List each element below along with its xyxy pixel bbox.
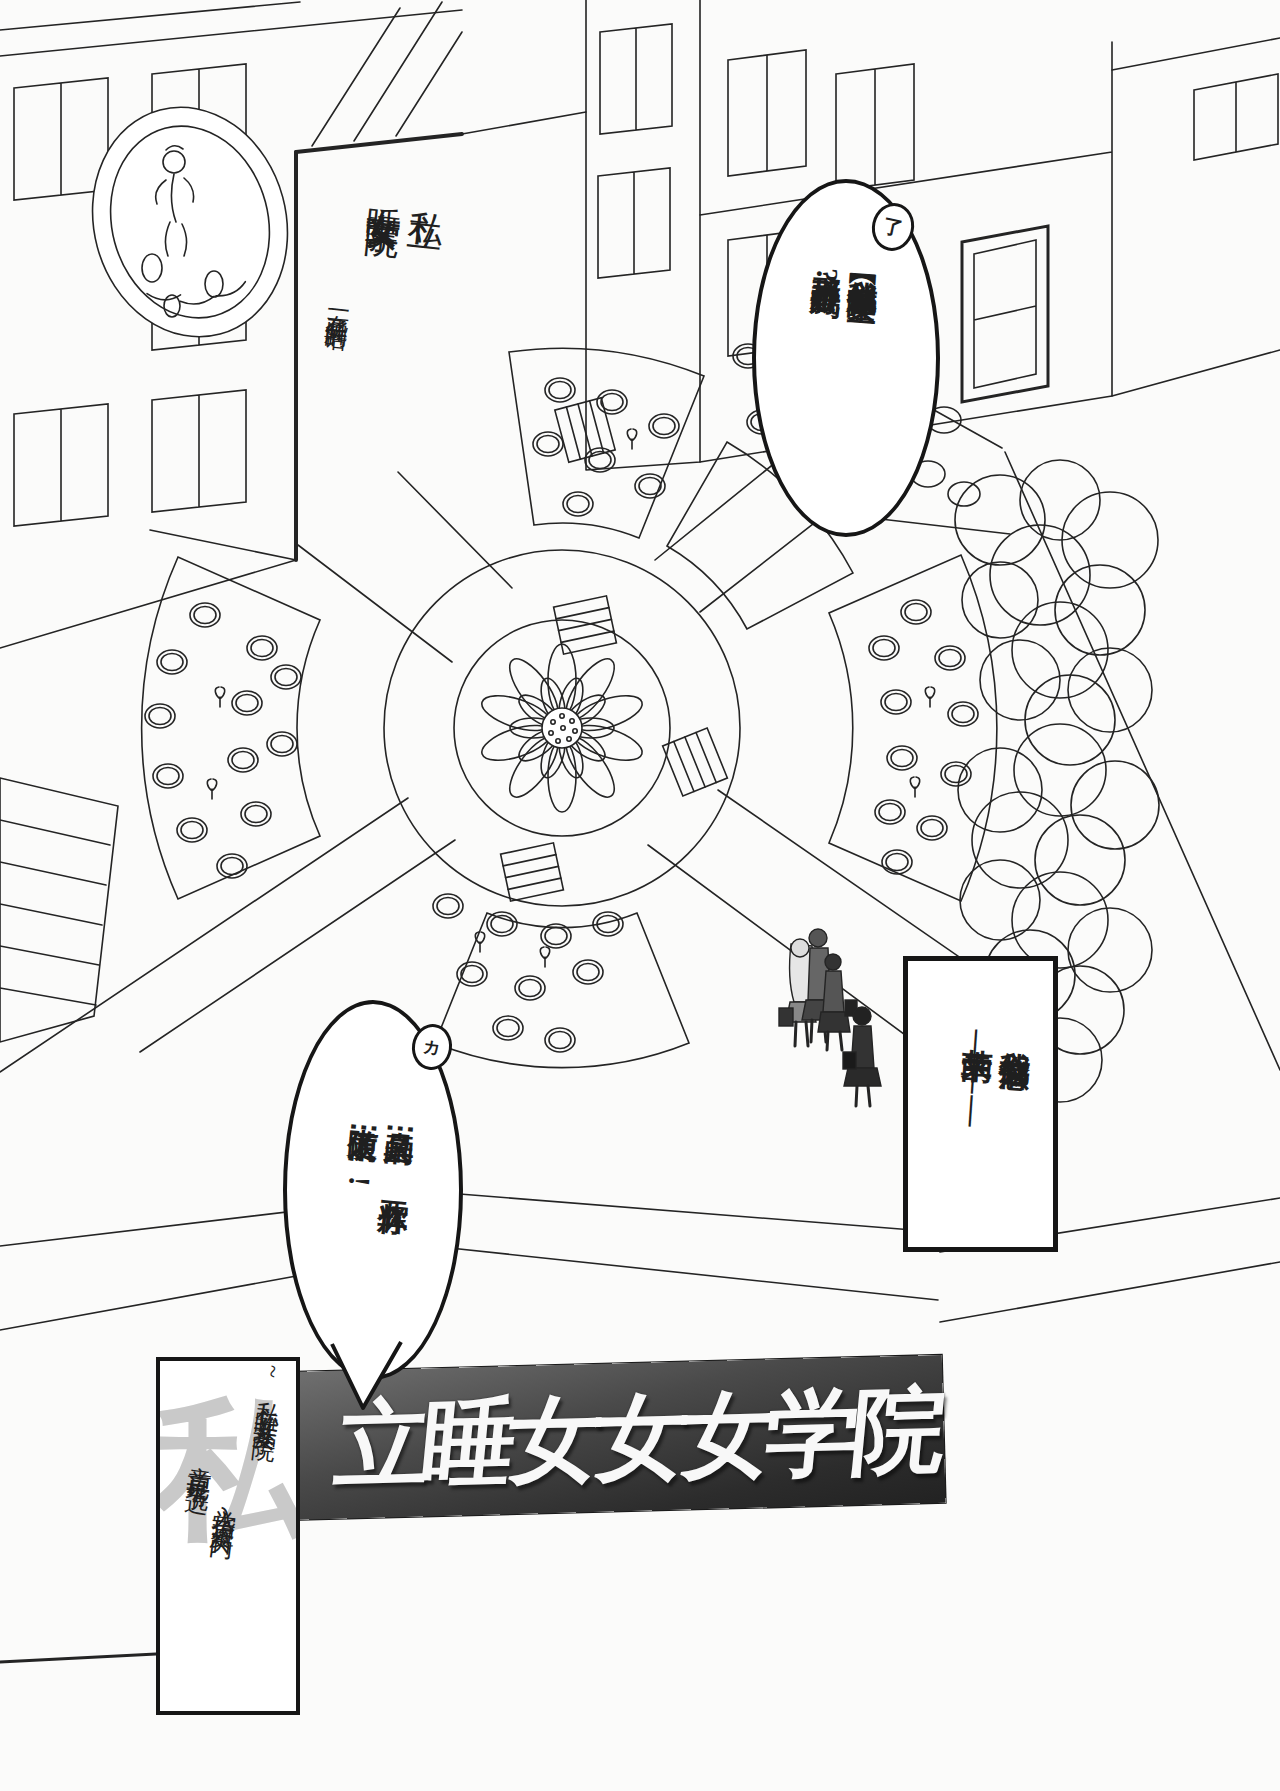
school-gate xyxy=(962,226,1048,402)
building-top-left xyxy=(0,2,586,648)
bubble-bl-line-1: 真是的⋮⋮亚辉你 xyxy=(379,1106,420,1193)
bubble-tr-line-2: 那样不就好了吗? xyxy=(810,253,846,286)
speech-box-text: 我们会倍感 荣幸的――― xyxy=(951,1022,1037,1132)
bubble-bl-text: 真是的⋮⋮亚辉你 太随便了⋮⋮! xyxy=(339,1103,422,1193)
speech-box-line-2: 荣幸的――― xyxy=(954,1023,996,1130)
side-note-box: 私 ~私立睡女女女学院 入学指导资料内 音声记录节选~ xyxy=(156,1357,300,1715)
speech-box-line-1: 我们会倍感 xyxy=(992,1025,1034,1132)
sleeping-figure-bed xyxy=(67,85,313,359)
bubble-tr-mark: 了 xyxy=(880,212,905,243)
bubble-tr-line-1: 我们就像【睡女生】 xyxy=(846,255,882,288)
bubble-bl-line-2: 太随便了⋮⋮! xyxy=(342,1103,383,1190)
lotus-fountain xyxy=(478,644,646,812)
school-title: 立睡女女女学院 xyxy=(330,1367,944,1510)
bubble-bl-mark: カ xyxy=(422,1034,442,1059)
speech-box-right: 我们会倍感 荣幸的――― xyxy=(903,956,1058,1252)
building-top-right xyxy=(586,0,1280,534)
title-banner: 立睡女女女学院 xyxy=(288,1355,946,1520)
walking-students xyxy=(779,929,881,1106)
manga-page: 立睡女女女学院 私 ~私立睡女女女学院 入学指导资料内 音声记录节选~ 私立 睡… xyxy=(0,0,1280,1791)
bubble-tr-text: 我们就像【睡女生】 那样不就好了吗? xyxy=(807,252,885,288)
stairs xyxy=(0,778,118,1042)
